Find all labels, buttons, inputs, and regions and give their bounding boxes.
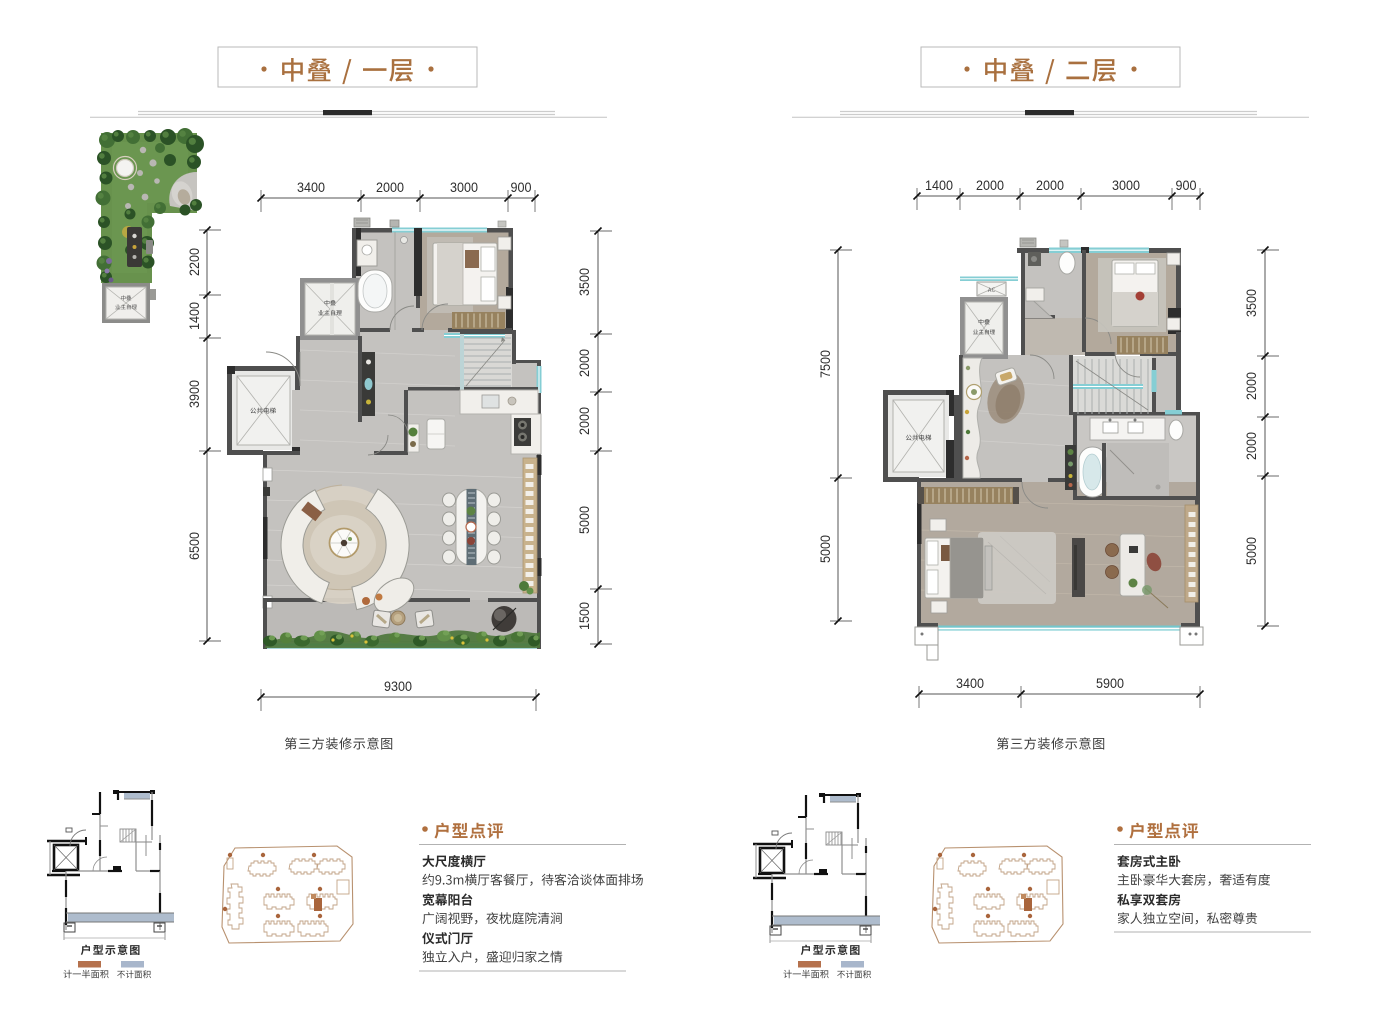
svg-text:1500: 1500 <box>577 602 592 630</box>
svg-text:1400: 1400 <box>187 302 202 330</box>
svg-text:2000: 2000 <box>1244 432 1259 460</box>
svg-text:3000: 3000 <box>1112 178 1140 193</box>
svg-text:7500: 7500 <box>818 350 833 378</box>
svg-text:3400: 3400 <box>956 676 984 691</box>
svg-text:3000: 3000 <box>450 180 478 195</box>
svg-text:3500: 3500 <box>1244 289 1259 317</box>
svg-text:3500: 3500 <box>577 268 592 296</box>
svg-text:2200: 2200 <box>187 248 202 276</box>
svg-text:5000: 5000 <box>1244 537 1259 565</box>
svg-text:2000: 2000 <box>376 180 404 195</box>
svg-text:2000: 2000 <box>577 407 592 435</box>
svg-text:5900: 5900 <box>1096 676 1124 691</box>
svg-text:5000: 5000 <box>577 506 592 534</box>
svg-text:2000: 2000 <box>976 178 1004 193</box>
svg-text:2000: 2000 <box>1244 372 1259 400</box>
svg-text:9300: 9300 <box>384 679 412 694</box>
svg-text:3900: 3900 <box>187 380 202 408</box>
svg-text:2000: 2000 <box>577 349 592 377</box>
svg-text:3400: 3400 <box>297 180 325 195</box>
svg-text:900: 900 <box>1176 178 1197 193</box>
svg-text:1400: 1400 <box>925 178 953 193</box>
svg-text:900: 900 <box>511 180 532 195</box>
svg-text:6500: 6500 <box>187 532 202 560</box>
svg-text:5000: 5000 <box>818 535 833 563</box>
svg-text:2000: 2000 <box>1036 178 1064 193</box>
